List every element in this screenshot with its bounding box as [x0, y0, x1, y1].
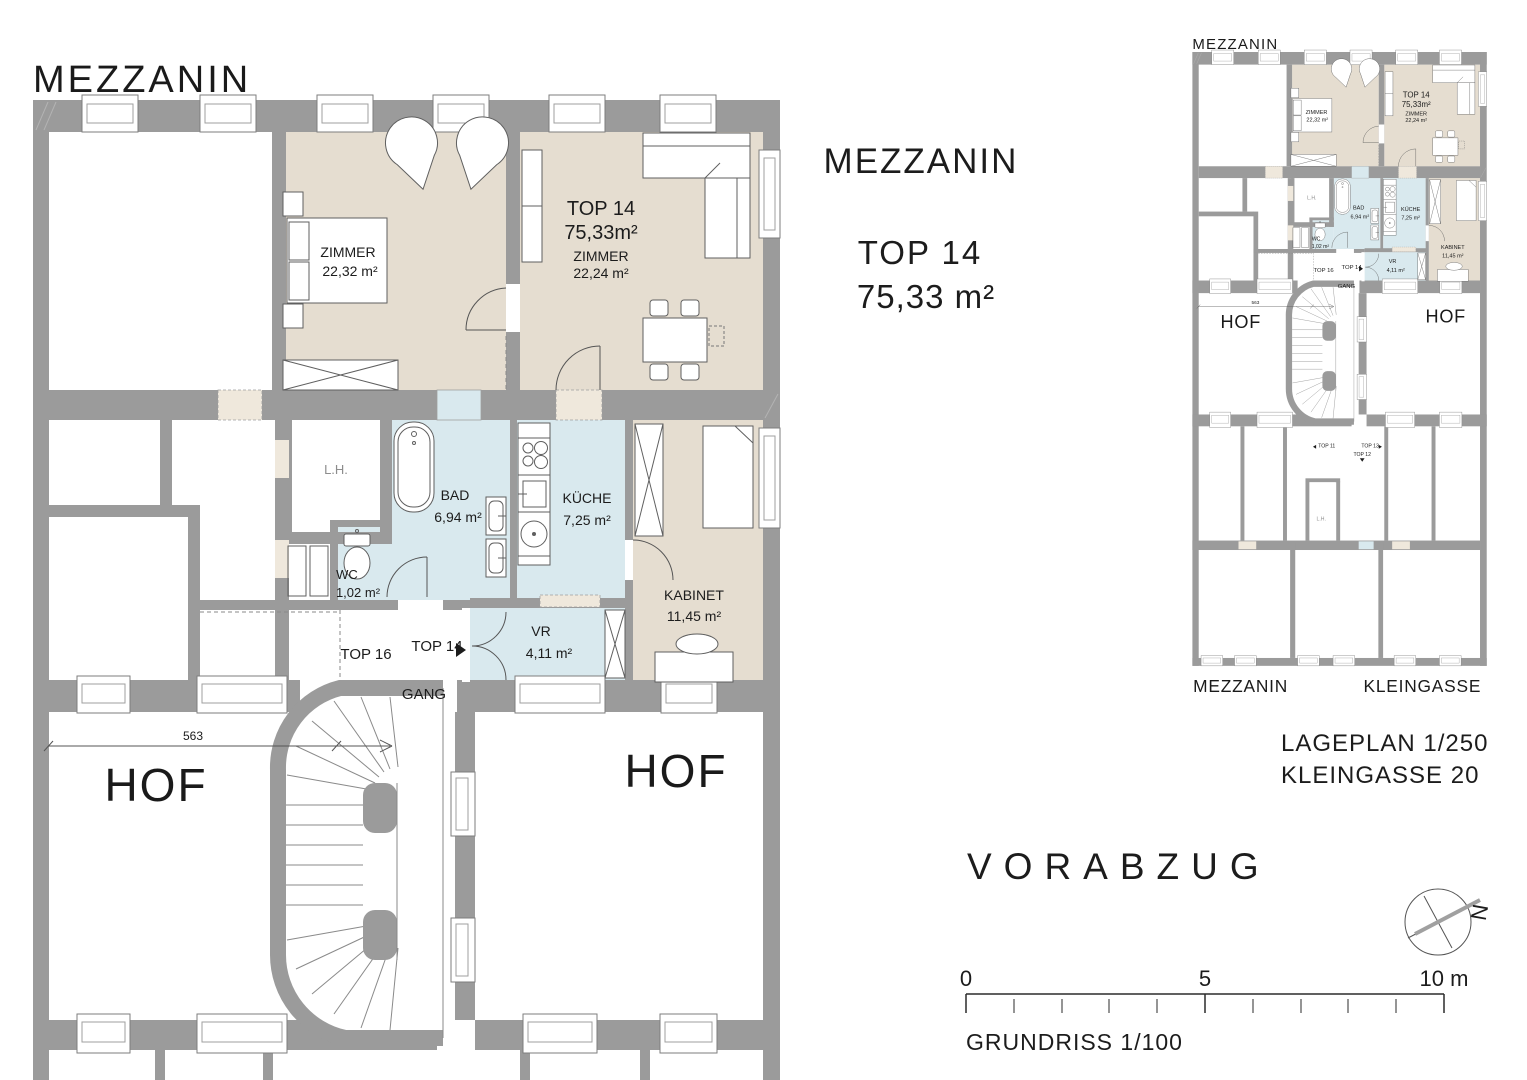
- compass-north-label: N: [1466, 902, 1493, 922]
- unit-info-block: MEZZANIN TOP 14 75,33 m²: [824, 142, 1019, 315]
- main-plan: [33, 59, 780, 1080]
- floorplan-sheet: MEZZANIN: [0, 0, 1527, 1080]
- scale-ten-label: 10 m: [1420, 966, 1469, 991]
- status-caption: VORABZUG: [967, 846, 1271, 887]
- info-area: 75,33 m²: [857, 278, 995, 315]
- scale-zero-label: 0: [960, 966, 972, 991]
- info-floor: MEZZANIN: [824, 142, 1019, 181]
- site-plan: [1192, 36, 1486, 696]
- captions-block: LAGEPLAN 1/250 KLEINGASSE 20 VORABZUG: [967, 730, 1488, 887]
- compass: N: [1405, 889, 1493, 955]
- lageplan-caption: LAGEPLAN 1/250: [1281, 730, 1488, 757]
- scale-five-label: 5: [1199, 966, 1211, 991]
- grundriss-caption: GRUNDRISS 1/100: [966, 1029, 1183, 1055]
- scale-bar: 0 5 10 m GRUNDRISS 1/100: [960, 966, 1469, 1055]
- address-caption: KLEINGASSE 20: [1281, 762, 1479, 789]
- info-unit: TOP 14: [858, 234, 983, 271]
